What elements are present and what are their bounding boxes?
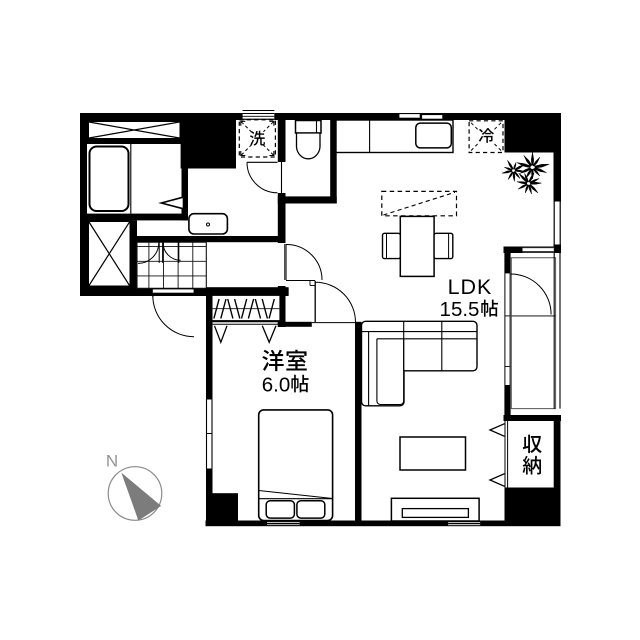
svg-text:LDK: LDK	[448, 275, 493, 299]
svg-text:15.5: 15.5	[440, 298, 480, 321]
svg-text:6.0: 6.0	[262, 374, 291, 397]
svg-text:N: N	[106, 452, 118, 471]
